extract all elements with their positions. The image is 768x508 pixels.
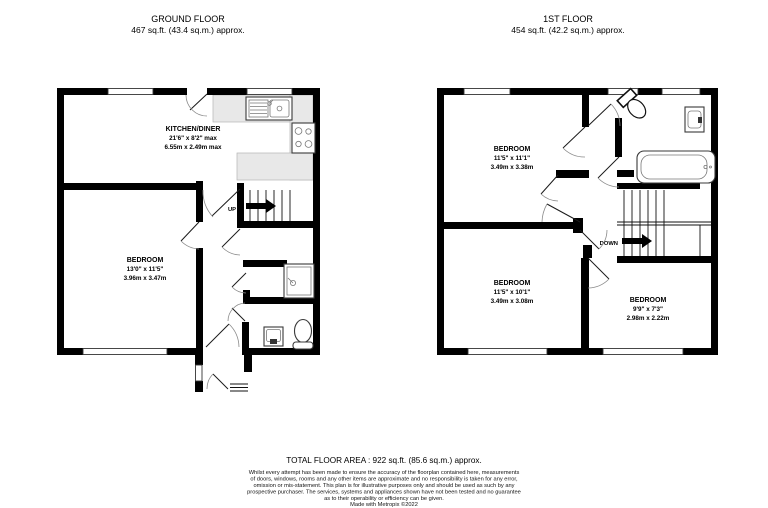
ff-bedroom3-dims-imperial: 9'9" x 7'3" bbox=[633, 306, 663, 313]
ff-bedroom1-name: BEDROOM bbox=[494, 146, 531, 153]
ff-bedroom1-dims-imperial: 11'5" x 11'1" bbox=[494, 155, 530, 162]
ff-bedroom1-label: BEDROOM 11'5" x 11'1" 3.49m x 3.38m bbox=[491, 146, 534, 171]
ground-floor-plan: GROUND FLOOR 467 sq.ft. (43.4 sq.m.) app… bbox=[57, 14, 320, 392]
ff-bedroom3-name: BEDROOM bbox=[630, 297, 667, 304]
total-floor-area: TOTAL FLOOR AREA : 922 sq.ft. (85.6 sq.m… bbox=[286, 456, 482, 465]
disclaimer-line-3: omission or mis-statement. This plan is … bbox=[253, 483, 514, 489]
ff-bedroom2-dims-imperial: 11'5" x 10'1" bbox=[494, 289, 531, 296]
ground-floor-area: 467 sq.ft. (43.4 sq.m.) approx. bbox=[131, 25, 244, 35]
ff-bedroom2-dims-metric: 3.49m x 3.08m bbox=[491, 298, 534, 305]
ff-basin-icon bbox=[685, 107, 704, 132]
up-label: UP bbox=[228, 207, 236, 213]
kitchen-sink-icon bbox=[246, 97, 292, 120]
gf-bedroom-dims-imperial: 13'0" x 11'5" bbox=[127, 266, 164, 273]
kitchen-label: KITCHEN/DINER 21'6" x 8'2" max 6.55m x 2… bbox=[164, 126, 222, 151]
down-label: DOWN bbox=[600, 241, 618, 247]
first-floor-walls bbox=[437, 88, 718, 355]
entrance-steps bbox=[230, 384, 248, 391]
down-arrow-icon bbox=[622, 234, 652, 248]
toilet-icon bbox=[293, 320, 313, 350]
ff-bedroom3-dims-metric: 2.98m x 2.22m bbox=[627, 315, 670, 322]
shower-icon bbox=[284, 264, 314, 298]
up-arrow-icon bbox=[246, 199, 276, 213]
first-floor-title: 1ST FLOOR bbox=[543, 14, 593, 24]
kitchen-dims-imperial: 21'6" x 8'2" max bbox=[169, 135, 217, 142]
ff-bedroom3-label: BEDROOM 9'9" x 7'3" 2.98m x 2.22m bbox=[627, 297, 670, 322]
kitchen-name: KITCHEN/DINER bbox=[166, 126, 221, 133]
kitchen-dims-metric: 6.55m x 2.49m max bbox=[164, 144, 222, 151]
ff-bedroom1-dims-metric: 3.49m x 3.38m bbox=[491, 164, 534, 171]
stove-icon bbox=[292, 123, 315, 153]
ff-bedroom2-name: BEDROOM bbox=[494, 280, 531, 287]
floorplan-page: GROUND FLOOR 467 sq.ft. (43.4 sq.m.) app… bbox=[0, 0, 768, 508]
disclaimer-line-2: of doors, windows, rooms and any other i… bbox=[250, 477, 518, 483]
gf-bedroom-name: BEDROOM bbox=[127, 257, 164, 264]
ff-bedroom2-label: BEDROOM 11'5" x 10'1" 3.49m x 3.08m bbox=[491, 280, 534, 305]
credit-line: Made with Metropix ©2022 bbox=[350, 501, 418, 508]
basin-icon bbox=[264, 327, 283, 346]
disclaimer-line-4: prospective purchaser. The services, sys… bbox=[247, 490, 521, 496]
first-floor-door-swings bbox=[541, 104, 620, 288]
ground-floor-title: GROUND FLOOR bbox=[151, 14, 225, 24]
footer: TOTAL FLOOR AREA : 922 sq.ft. (85.6 sq.m… bbox=[247, 456, 521, 508]
gf-bedroom-label: BEDROOM 13'0" x 11'5" 3.96m x 3.47m bbox=[124, 257, 167, 282]
first-floor-area: 454 sq.ft. (42.2 sq.m.) approx. bbox=[511, 25, 624, 35]
disclaimer-line-1: Whilst every attempt has been made to en… bbox=[249, 470, 520, 476]
floorplan-drawing: GROUND FLOOR 467 sq.ft. (43.4 sq.m.) app… bbox=[0, 0, 768, 508]
gf-bedroom-dims-metric: 3.96m x 3.47m bbox=[124, 275, 167, 282]
bathtub-icon bbox=[637, 151, 715, 183]
first-floor-plan: 1ST FLOOR 454 sq.ft. (42.2 sq.m.) approx… bbox=[437, 14, 718, 355]
stairs-down: DOWN bbox=[600, 190, 711, 256]
